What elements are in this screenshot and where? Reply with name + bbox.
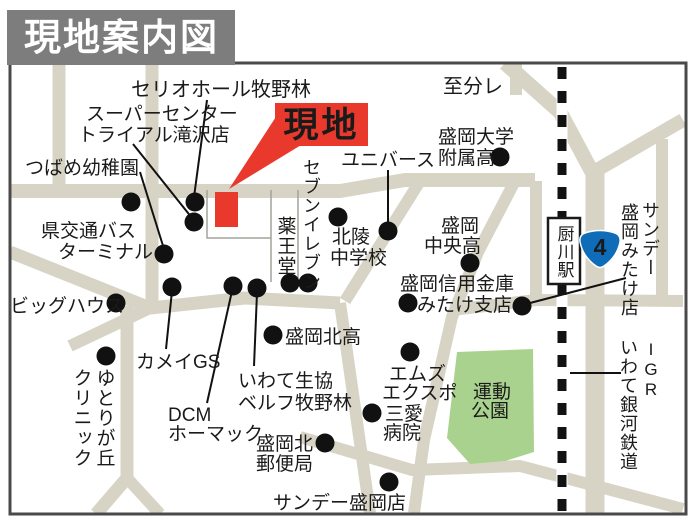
dot-yutorigaoka-clinic xyxy=(97,347,116,366)
label-hokuryo-2: 中学校 xyxy=(330,247,387,269)
kuriyagawa-station: 厨川駅 xyxy=(548,218,580,284)
label-hokuryo-1: 北陵 xyxy=(332,226,370,248)
label-bus-terminal-2: ターミナル xyxy=(58,241,153,263)
label-tsubame: つばめ幼稚園 xyxy=(25,157,139,179)
label-yutorigaoka-1: ゆとりが丘 xyxy=(94,368,116,468)
dot-yakuodo xyxy=(281,274,300,293)
label-sunday-morioka: サンデー盛岡店 xyxy=(273,492,406,514)
label-shinkin-2: みたけ支店 xyxy=(417,294,512,316)
label-big-house: ビッグハウス xyxy=(10,295,124,317)
dot-sunday-mitake xyxy=(513,297,532,316)
label-super-center: スーパーセンター xyxy=(86,103,238,125)
label-coop-2: ベルフ牧野林 xyxy=(238,392,352,414)
label-coop-1: いわて生協 xyxy=(238,370,333,392)
label-park-2: 公園 xyxy=(471,401,509,422)
dot-shinkin-bank xyxy=(399,294,418,313)
label-yutorigaoka-2: クリニック xyxy=(71,368,92,468)
dot-iwate-coop xyxy=(248,279,267,298)
label-serio-hall: セリオホール牧野林 xyxy=(131,78,311,101)
label-sanai-1: 三愛 xyxy=(385,403,423,425)
dot-sunday-morioka xyxy=(380,473,399,492)
dot-bus-terminal xyxy=(122,193,141,212)
label-shinkin-1: 盛岡信用金庫 xyxy=(400,273,514,295)
label-kita-post-1: 盛岡北 xyxy=(256,433,313,455)
label-univ-high-1: 盛岡大学 xyxy=(438,126,514,148)
label-dcm-2: ホーマック xyxy=(168,423,263,445)
site-label: 現地 xyxy=(283,106,359,145)
label-sanai-2: 病院 xyxy=(383,422,421,444)
site-marker xyxy=(215,192,238,227)
dot-ms-expo xyxy=(401,343,420,362)
label-univ-high-2: 附属高 xyxy=(438,147,495,169)
label-to-wakare: 至分レ xyxy=(443,75,503,98)
dot-universe xyxy=(379,222,398,241)
label-universe: ユニバース xyxy=(341,150,435,171)
page-title: 現地案内図 xyxy=(7,10,235,65)
label-dcm-1: DCM xyxy=(168,405,211,426)
dot-hokuryo-junior-high xyxy=(329,208,348,227)
label-ms-expo-2: エクスポ xyxy=(382,382,457,404)
dot-tsubame-kindergarten xyxy=(155,245,174,264)
label-seven-eleven: セブンイレブン xyxy=(301,158,321,291)
label-trial-takizawa: トライアル滝沢店 xyxy=(78,124,230,146)
label-igr: IGR xyxy=(642,340,661,400)
label-yakuodo: 薬王堂 xyxy=(275,216,297,276)
label-kita-high: 盛岡北高 xyxy=(285,326,361,348)
label-kita-post-2: 郵便局 xyxy=(256,453,313,475)
dot-serio-hall xyxy=(186,193,205,212)
station-label: 厨川駅 xyxy=(555,225,575,279)
label-sunday-mitake-2: 盛岡みたけ店 xyxy=(619,203,639,317)
label-chuo-high-1: 盛岡 xyxy=(441,215,479,237)
dot-morioka-kita-post xyxy=(316,434,335,453)
route-4-number: 4 xyxy=(594,234,607,260)
label-bus-terminal-1: 県交通バス xyxy=(41,220,136,242)
dot-sanai-hospital xyxy=(363,404,382,423)
label-igr-kana: いわて銀河鉄道 xyxy=(618,338,638,471)
label-park-1: 運動 xyxy=(473,381,511,403)
dot-dcm-homac xyxy=(224,277,243,296)
label-kamei-gs: カメイGS xyxy=(136,352,220,373)
dot-kamei-gs xyxy=(163,278,182,297)
label-ms-expo-1: エムズ xyxy=(389,363,446,385)
label-chuo-high-2: 中央高 xyxy=(424,235,481,257)
label-sunday-mitake-1: サンデー xyxy=(640,201,660,277)
dot-trial-takizawa xyxy=(185,213,204,232)
dot-morioka-kita-high xyxy=(264,326,283,345)
map-canvas: セリオホール牧野林スーパーセンタートライアル滝沢店つばめ幼稚園県交通バスターミナ… xyxy=(0,0,691,523)
